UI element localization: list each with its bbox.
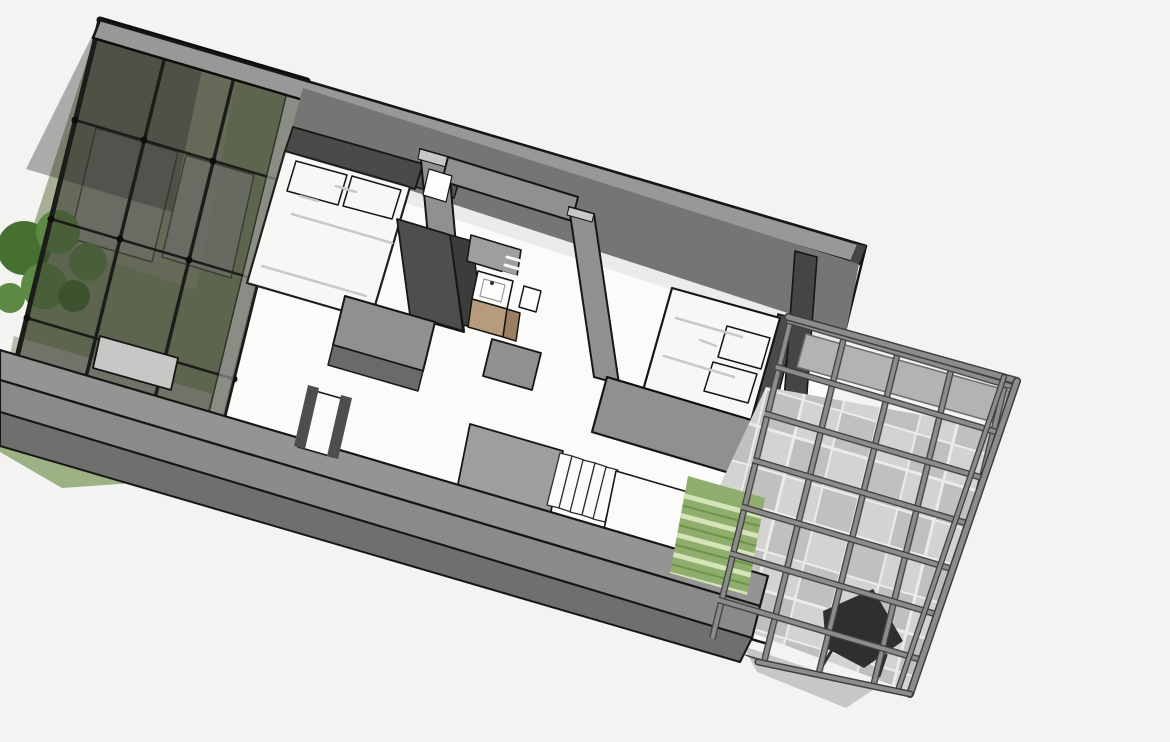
3d-floorplan-viewport[interactable] bbox=[0, 0, 1170, 742]
mullion-node bbox=[72, 117, 79, 124]
mullion-node bbox=[141, 137, 148, 144]
scene bbox=[0, 0, 1170, 742]
sink-faucet bbox=[490, 281, 494, 285]
floorplan-render[interactable] bbox=[0, 0, 1170, 742]
mullion-node bbox=[48, 216, 55, 223]
mullion-node bbox=[186, 257, 193, 264]
mullion-node bbox=[117, 236, 124, 243]
mullion-node bbox=[210, 158, 217, 165]
mullion-node bbox=[24, 315, 31, 322]
